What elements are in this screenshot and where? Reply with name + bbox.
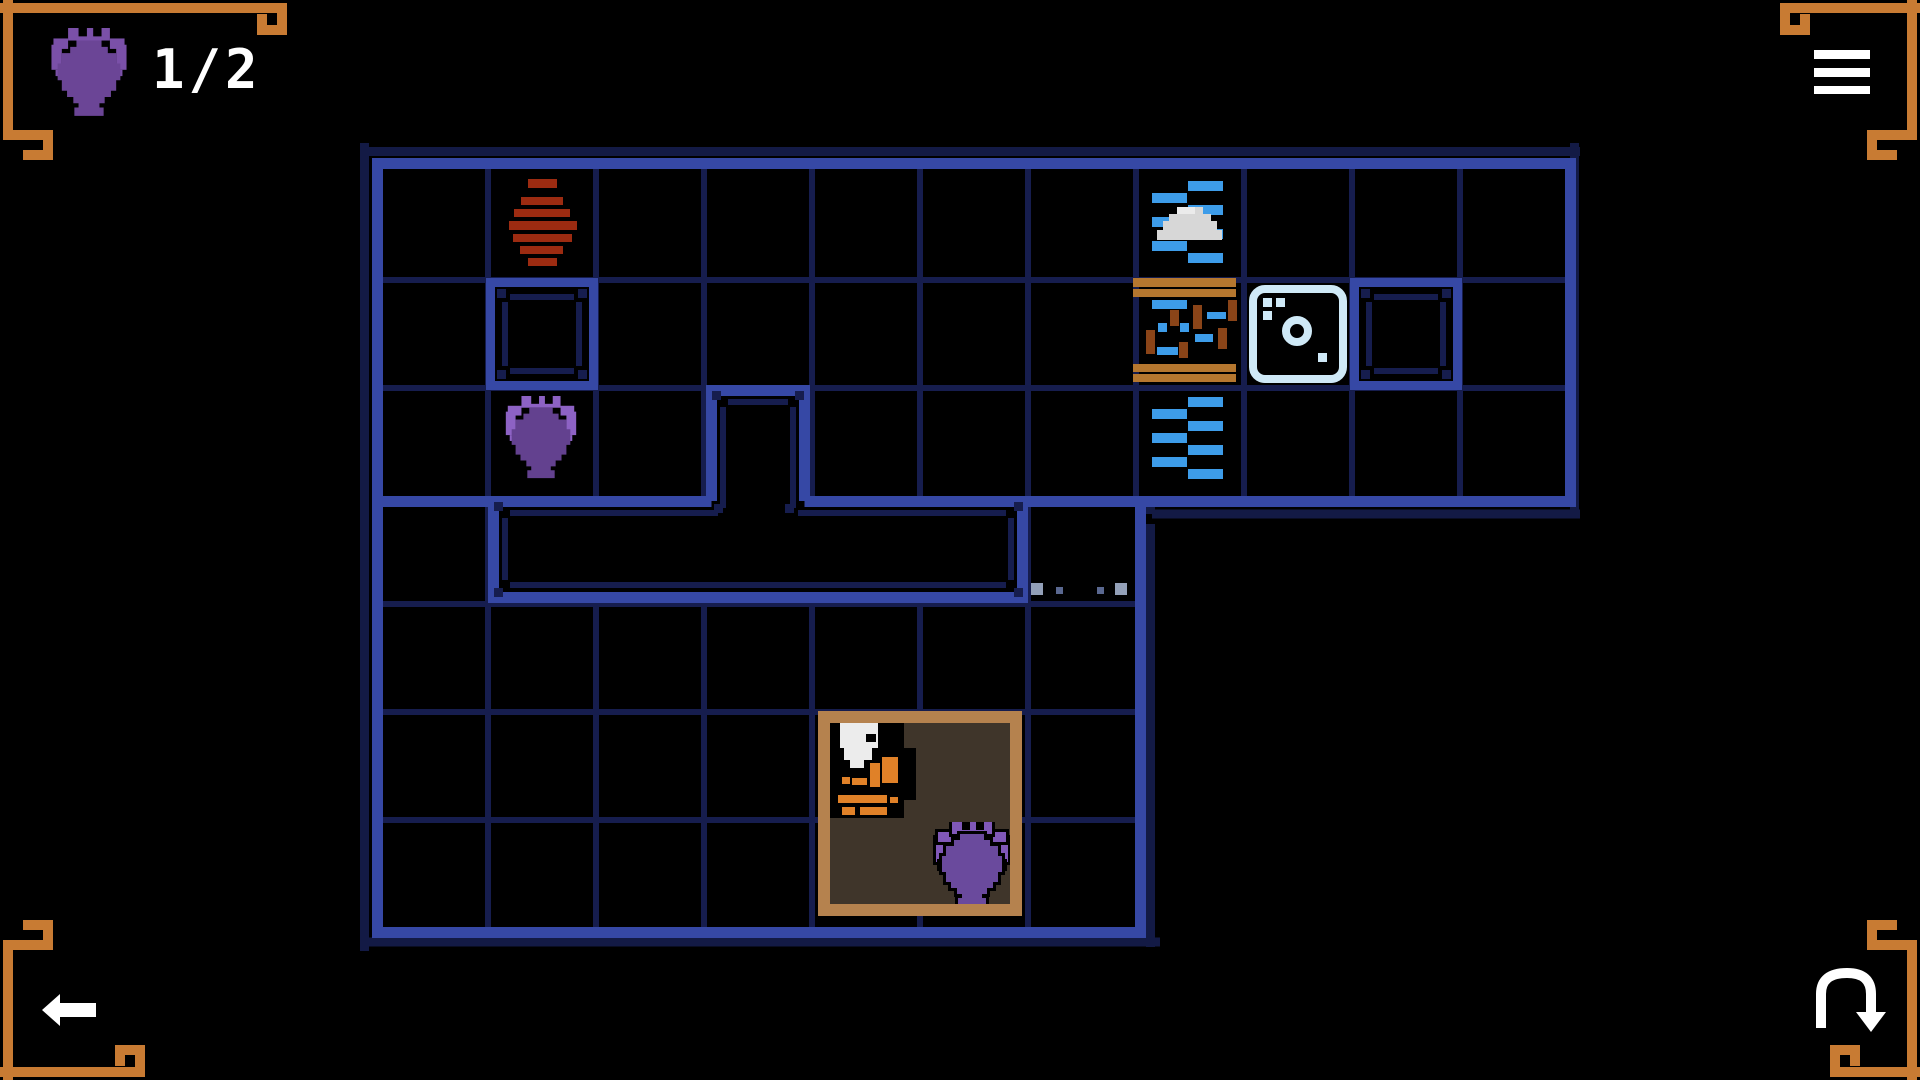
restart-button[interactable] [1812,966,1888,1044]
game-stage: 1/2 [0,0,1920,1080]
greek-corner-bottom-left [0,900,300,1080]
hamburger-menu-icon [1812,44,1872,94]
back-arrow-icon [42,992,98,1030]
back-button[interactable] [42,992,98,1030]
striped-clay-pot [509,179,577,266]
water-tile-bottom [1152,397,1223,479]
ice-die-block [1253,289,1343,379]
pebble-trail [1031,583,1127,595]
menu-button[interactable] [1812,44,1872,94]
restart-undo-icon [1812,966,1888,1044]
amphora-icon [44,28,134,120]
hut [818,711,1022,916]
pedestal-slab-b [1355,283,1458,386]
purple-amphora-field [506,396,576,478]
greek-corner-top-right [1620,0,1920,180]
pedestal-slab-a [491,283,594,386]
amphora-counter: 1/2 [152,38,262,101]
puzzle-map [340,140,1580,952]
broken-bridge-debris [1133,278,1237,382]
